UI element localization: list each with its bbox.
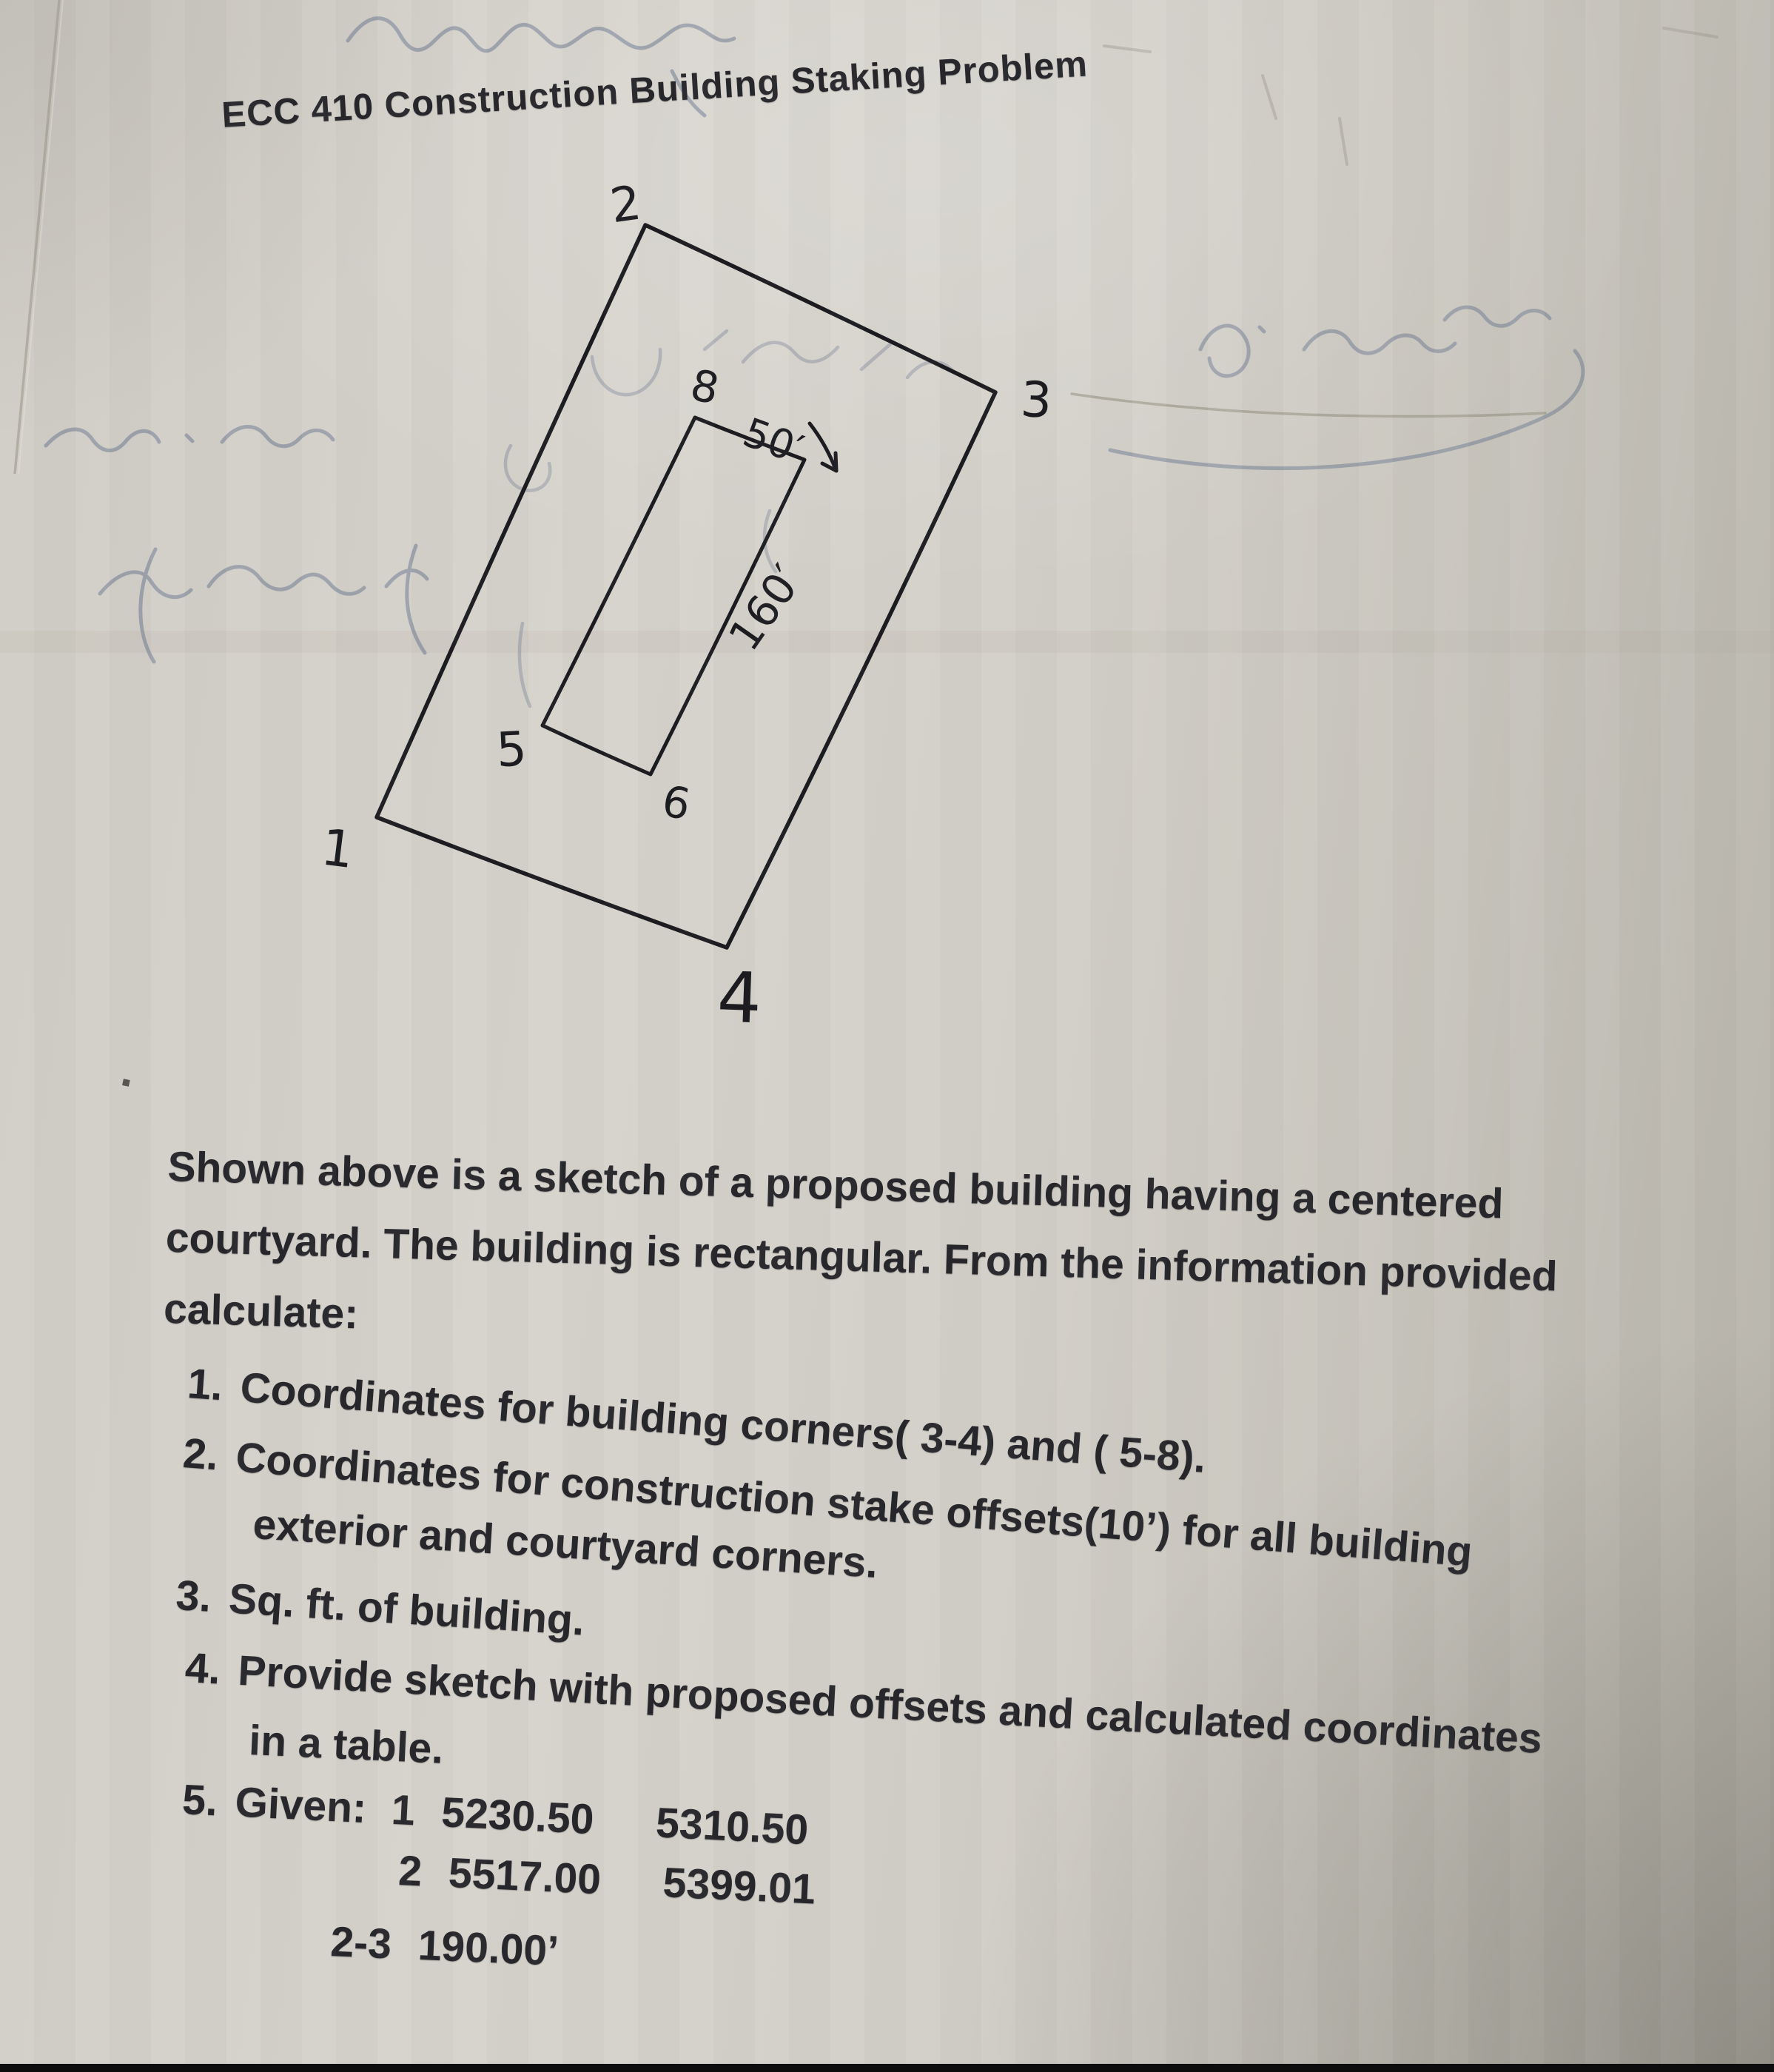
given-point-id: 2-3 <box>329 1917 392 1968</box>
corner-label-5: 5 <box>495 722 528 778</box>
task-item-4-continued: in a table. <box>248 1716 445 1774</box>
paper-sheet: 2 3 8 50′ 160′ 5 6 1 4 ECC 410 Construct… <box>0 0 1774 2072</box>
corner-label-1: 1 <box>318 818 357 880</box>
given-value-1: 5230.50 <box>440 1788 595 1844</box>
task-number: 2. <box>181 1429 220 1480</box>
building-outline <box>377 225 995 948</box>
corner-label-2: 2 <box>607 175 645 234</box>
paper-shading-band <box>0 631 1774 653</box>
given-value-1: 5517.00 <box>448 1848 602 1904</box>
task-number: 3. <box>175 1571 213 1622</box>
task-number: 4. <box>184 1643 222 1694</box>
given-point-id: 1 <box>390 1786 416 1835</box>
pencil-smudge <box>1104 28 1717 164</box>
given-value-2: 5310.50 <box>655 1799 810 1854</box>
given-value-1: 190.00’ <box>417 1921 560 1976</box>
pencil-line <box>1072 394 1545 416</box>
given-value-2: 5399.01 <box>662 1859 816 1913</box>
paper-crease <box>15 0 63 474</box>
photo-edge-bottom <box>0 2064 1774 2072</box>
corner-label-6: 6 <box>659 776 694 830</box>
corner-label-3: 3 <box>1019 371 1053 429</box>
bleed-through-ink <box>1110 307 1583 469</box>
given-label: Given: <box>234 1777 367 1833</box>
ink-speck <box>122 1079 130 1087</box>
task-number: 1. <box>186 1359 224 1410</box>
task-number: 5. <box>181 1775 219 1825</box>
dimension-label-courtyard-width: 50′ <box>737 409 810 473</box>
corner-label-4: 4 <box>716 957 763 1039</box>
corner-label-8: 8 <box>686 360 723 415</box>
intro-paragraph: Shown above is a sketch of a proposed bu… <box>163 1131 1561 1383</box>
given-point-id: 2 <box>397 1846 423 1896</box>
dimension-arrow <box>810 423 836 471</box>
task-text: in a table. <box>248 1717 445 1773</box>
